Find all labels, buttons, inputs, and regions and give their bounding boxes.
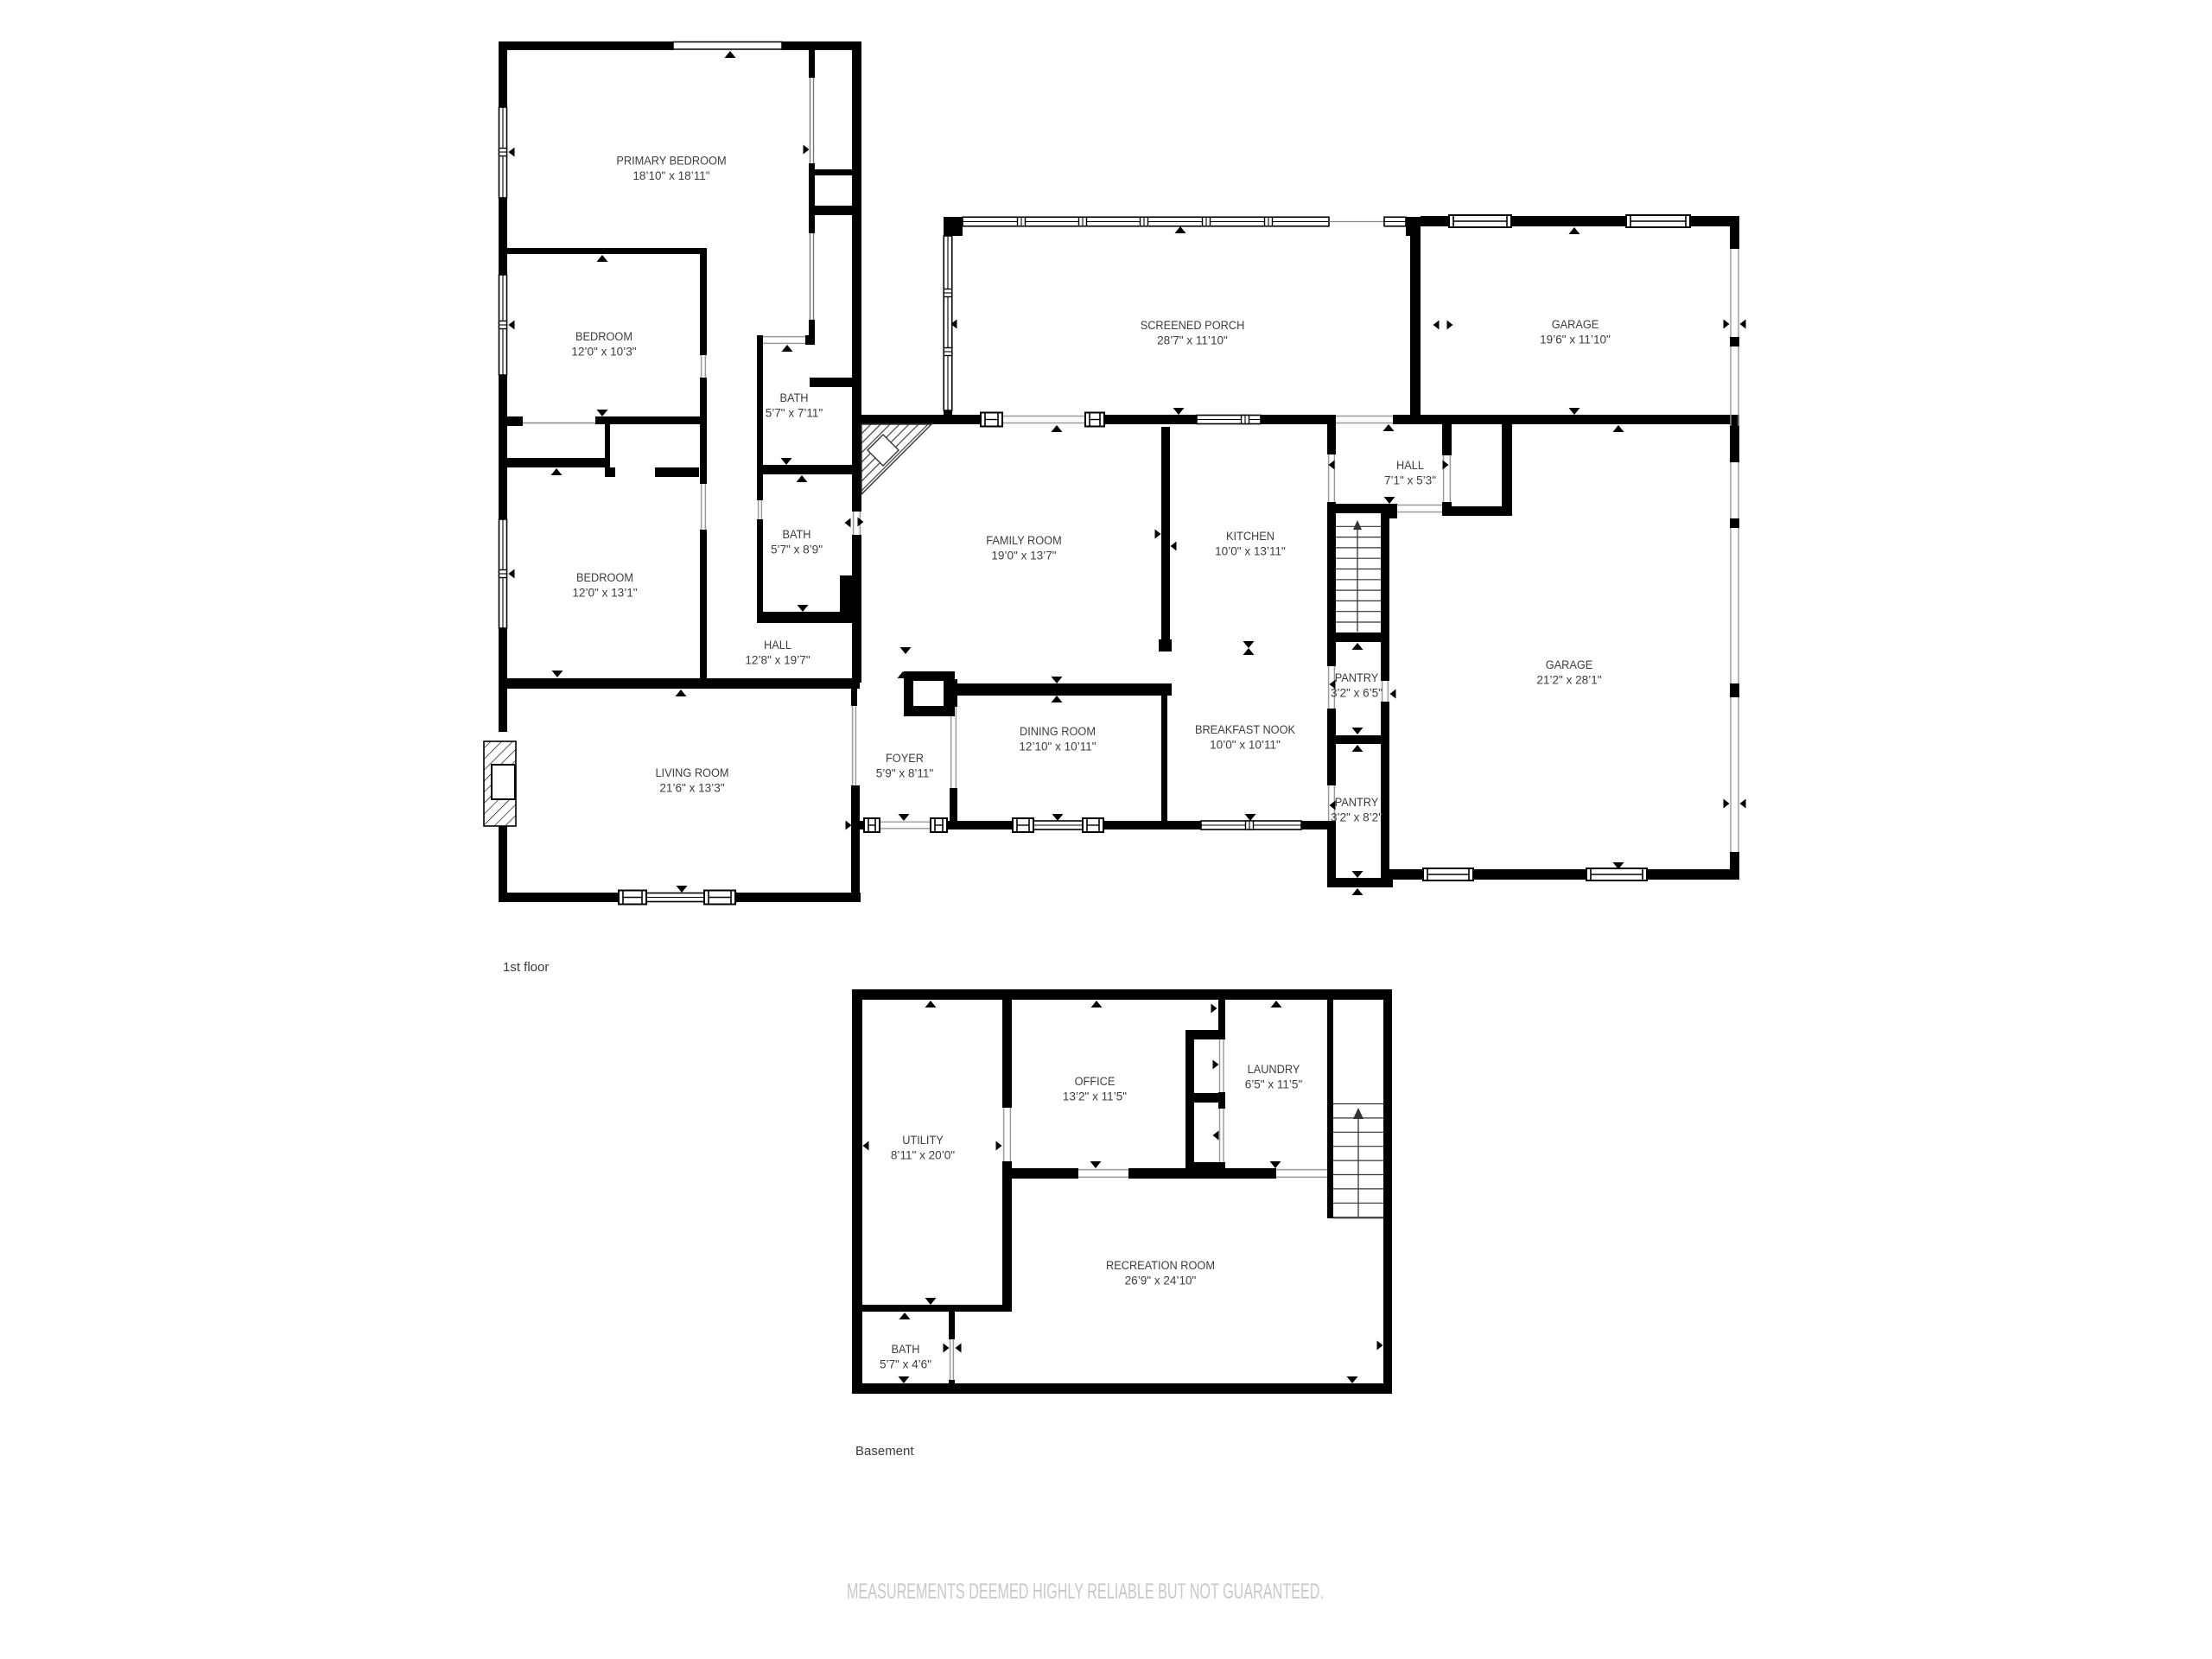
svg-text:10’0" x 10’11": 10’0" x 10’11" <box>1210 739 1281 753</box>
svg-text:PANTRY: PANTRY <box>1335 796 1379 810</box>
svg-text:MEASUREMENTS DEEMED HIGHLY REL: MEASUREMENTS DEEMED HIGHLY RELIABLE BUT … <box>847 1580 1324 1604</box>
svg-text:BATH: BATH <box>782 528 810 542</box>
svg-text:12’10" x 10’11": 12’10" x 10’11" <box>1019 741 1096 754</box>
svg-text:3’2" x 6’5": 3’2" x 6’5" <box>1331 687 1382 701</box>
svg-text:5’7" x 4’6": 5’7" x 4’6" <box>880 1358 931 1372</box>
svg-text:13’2" x 11’5": 13’2" x 11’5" <box>1063 1090 1127 1104</box>
svg-text:SCREENED PORCH: SCREENED PORCH <box>1141 319 1245 333</box>
svg-text:21’2" x 28’1": 21’2" x 28’1" <box>1536 674 1601 688</box>
svg-text:19’0" x 13’7": 19’0" x 13’7" <box>991 550 1056 563</box>
svg-text:5’9" x 8’11": 5’9" x 8’11" <box>876 767 934 781</box>
svg-text:OFFICE: OFFICE <box>1075 1075 1116 1089</box>
svg-text:26’9" x 24’10": 26’9" x 24’10" <box>1125 1274 1197 1288</box>
svg-text:8’11" x 20’0": 8’11" x 20’0" <box>891 1149 955 1163</box>
svg-text:5’7" x 8’9": 5’7" x 8’9" <box>771 543 823 557</box>
svg-text:LAUNDRY: LAUNDRY <box>1248 1063 1300 1077</box>
svg-text:HALL: HALL <box>764 639 791 652</box>
svg-text:HALL: HALL <box>1396 459 1424 473</box>
svg-text:BREAKFAST NOOK: BREAKFAST NOOK <box>1195 723 1296 737</box>
svg-text:BEDROOM: BEDROOM <box>576 571 633 585</box>
svg-text:12’0" x 10’3": 12’0" x 10’3" <box>571 346 636 359</box>
svg-text:10’0" x 13’11": 10’0" x 13’11" <box>1215 545 1286 559</box>
svg-text:GARAGE: GARAGE <box>1546 658 1593 672</box>
svg-text:BATH: BATH <box>779 391 808 405</box>
svg-text:3’2" x 8’2": 3’2" x 8’2" <box>1331 811 1382 825</box>
svg-text:FOYER: FOYER <box>886 752 924 766</box>
svg-text:BEDROOM: BEDROOM <box>575 330 632 344</box>
svg-text:LIVING ROOM: LIVING ROOM <box>655 766 728 780</box>
svg-text:Basement: Basement <box>855 1444 914 1459</box>
svg-text:5’7" x 7’11": 5’7" x 7’11" <box>766 407 823 421</box>
svg-text:6’5" x 11’5": 6’5" x 11’5" <box>1245 1078 1303 1092</box>
svg-text:GARAGE: GARAGE <box>1552 318 1599 332</box>
svg-text:18’10" x 18’11": 18’10" x 18’11" <box>632 169 709 183</box>
svg-text:12’8" x 19’7": 12’8" x 19’7" <box>745 654 810 668</box>
svg-text:19’6" x 11’10": 19’6" x 11’10" <box>1540 334 1611 347</box>
svg-text:UTILITY: UTILITY <box>902 1134 944 1147</box>
svg-text:PANTRY: PANTRY <box>1335 671 1379 685</box>
svg-text:DINING ROOM: DINING ROOM <box>1020 725 1096 739</box>
svg-text:12’0" x 13’1": 12’0" x 13’1" <box>572 587 637 601</box>
svg-text:7’1" x 5’3": 7’1" x 5’3" <box>1384 474 1436 488</box>
svg-text:FAMILY ROOM: FAMILY ROOM <box>986 534 1062 548</box>
svg-text:28’7" x 11’10": 28’7" x 11’10" <box>1157 334 1228 348</box>
svg-text:RECREATION ROOM: RECREATION ROOM <box>1106 1259 1215 1273</box>
svg-text:1st floor: 1st floor <box>503 960 549 975</box>
svg-text:BATH: BATH <box>891 1343 919 1357</box>
svg-text:KITCHEN: KITCHEN <box>1226 530 1274 543</box>
svg-text:PRIMARY BEDROOM: PRIMARY BEDROOM <box>616 155 726 168</box>
svg-text:21’6" x 13’3": 21’6" x 13’3" <box>659 782 724 796</box>
